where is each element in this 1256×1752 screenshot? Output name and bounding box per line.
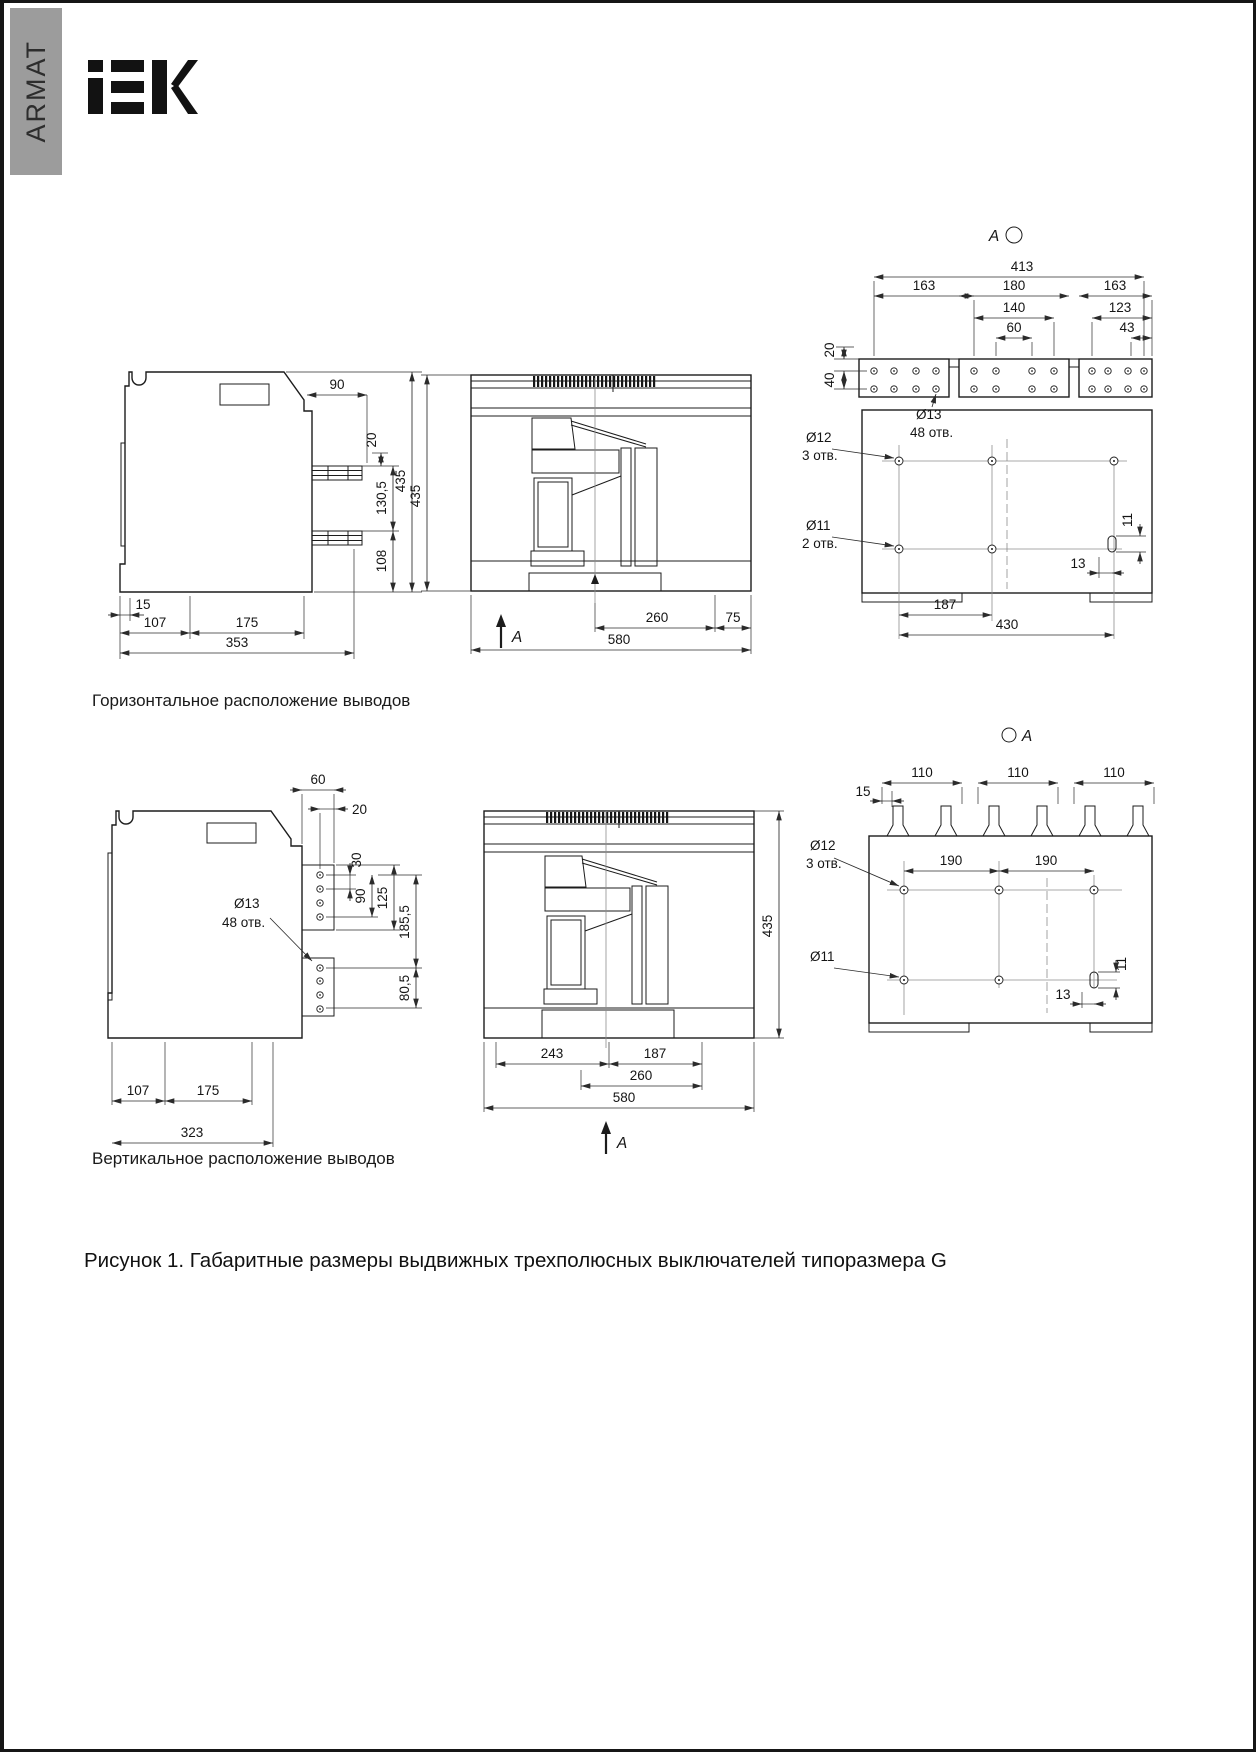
breaker-front-outline [471, 375, 751, 591]
dim-130-5: 130,5 [374, 481, 389, 515]
dim-108: 108 [374, 550, 389, 573]
terminal-tabs [887, 806, 1149, 836]
view-v-rear: A Ø12 3 отв. Ø11 [722, 643, 1184, 1055]
view-indicator: A [1002, 728, 1032, 745]
dim-243: 243 [541, 1046, 564, 1061]
view-h-side: 90 20 130,5 108 435 15 107 175 353 [82, 321, 427, 666]
breaker-front-outline [484, 811, 754, 1038]
view-h-rear: A [722, 199, 1184, 651]
hole-12-label: Ø12 [806, 430, 832, 445]
dimension-lines: 90 20 130,5 108 435 15 107 175 353 [108, 372, 422, 659]
dim-580: 580 [608, 632, 631, 647]
dim-435: 435 [409, 485, 423, 508]
armat-label: ARMAT [21, 40, 52, 143]
view-v-side: Ø13 48 отв. [64, 748, 432, 1160]
vertical-section-label: Вертикальное расположение выводов [92, 1149, 395, 1169]
dim-413: 413 [1011, 259, 1034, 274]
hole-13-label: Ø13 [916, 407, 942, 422]
dim-13: 13 [1070, 556, 1085, 571]
dim-353: 353 [226, 635, 249, 650]
terminal-holes [871, 368, 1147, 392]
dim-107: 107 [144, 615, 167, 630]
hole-callouts: Ø13 48 отв. [222, 896, 312, 961]
dim-43: 43 [1119, 320, 1134, 335]
dim-190-2: 190 [1035, 853, 1058, 868]
dim-11: 11 [1120, 513, 1135, 527]
hole-12-label: Ø12 [810, 838, 836, 853]
section-letter: A [616, 1135, 627, 1152]
dim-60: 60 [1006, 320, 1021, 335]
slot-hole [1108, 536, 1116, 552]
hole-12-count: 3 отв. [802, 448, 838, 463]
mechanism-details [531, 418, 657, 566]
dim-190-1: 190 [940, 853, 963, 868]
dim-323: 323 [181, 1125, 204, 1140]
dim-123: 123 [1109, 300, 1132, 315]
figure-caption: Рисунок 1. Габаритные размеры выдвижных … [84, 1249, 947, 1273]
mounting-plate [869, 836, 1152, 1032]
breaker-side-outline [120, 372, 312, 592]
dim-90: 90 [329, 377, 344, 392]
dim-140: 140 [1003, 300, 1026, 315]
hole-12-count: 3 отв. [806, 856, 842, 871]
dim-430: 430 [996, 617, 1019, 632]
dim-187: 187 [934, 597, 957, 612]
dim-13: 13 [1055, 987, 1070, 1002]
dimension-lines: 413 163 180 140 60 163 123 43 20 40 187 … [822, 259, 1152, 635]
hole-13-count: 48 отв. [910, 425, 953, 440]
section-arrow: A [601, 1121, 627, 1154]
dim-15: 15 [135, 597, 150, 612]
dimension-lines: 435 260 75 580 [409, 375, 751, 654]
breaker-side-outline [108, 811, 302, 1038]
dim-20: 20 [822, 342, 837, 357]
dimension-lines: 60 20 30 90 125 185,5 80,5 107 175 323 [112, 772, 422, 1147]
dim-60: 60 [310, 772, 325, 787]
dim-107: 107 [127, 1083, 150, 1098]
hole-11-count: 2 отв. [802, 536, 838, 551]
dim-163-right: 163 [1104, 278, 1127, 293]
dim-90: 90 [353, 888, 368, 903]
dim-260: 260 [646, 610, 669, 625]
dim-40: 40 [822, 372, 837, 387]
dim-110-1: 110 [911, 765, 933, 780]
dim-20: 20 [352, 802, 367, 817]
terminal-stubs [312, 466, 362, 545]
dim-80-5: 80,5 [397, 975, 412, 1001]
mounting-plate [862, 410, 1152, 639]
terminal-blocks [302, 865, 334, 1016]
page: ARMAT IEK [0, 0, 1256, 1752]
vent-grille [545, 812, 670, 823]
view-letter: A [988, 228, 999, 245]
hole-11-label: Ø11 [806, 518, 831, 533]
dim-187: 187 [644, 1046, 667, 1061]
view-letter: A [1021, 728, 1032, 745]
dim-175: 175 [197, 1083, 220, 1098]
dim-163-left: 163 [913, 278, 936, 293]
dim-110-2: 110 [1007, 765, 1029, 780]
dim-180: 180 [1003, 278, 1026, 293]
dim-580: 580 [613, 1090, 636, 1105]
horizontal-section-label: Горизонтальное расположение выводов [92, 691, 410, 711]
section-letter: A [511, 629, 522, 646]
armat-sidebar: ARMAT [10, 8, 62, 175]
dim-20: 20 [364, 432, 379, 447]
section-arrow: A [496, 614, 522, 648]
dim-15: 15 [855, 784, 870, 799]
hole-callouts: Ø13 48 отв. Ø12 3 отв. Ø11 2 отв. [802, 394, 953, 551]
vent-grille [532, 376, 657, 387]
dim-175: 175 [236, 615, 259, 630]
dim-260: 260 [630, 1068, 653, 1083]
view-indicator: A [988, 227, 1022, 245]
dim-110-3: 110 [1103, 765, 1125, 780]
dim-125: 125 [375, 887, 390, 910]
hole-13-label: Ø13 [234, 896, 260, 911]
hole-callouts: Ø12 3 отв. Ø11 [806, 838, 899, 977]
hole-13-count: 48 отв. [222, 915, 265, 930]
dim-435: 435 [393, 470, 408, 493]
hole-11-label: Ø11 [810, 949, 835, 964]
dim-185-5: 185,5 [397, 905, 412, 939]
terminal-strip [859, 359, 1152, 397]
iek-logo [88, 60, 198, 114]
dim-30: 30 [349, 852, 364, 867]
dim-11: 11 [1114, 957, 1129, 971]
view-h-front: 435 260 75 580 A [409, 318, 764, 663]
dimension-lines: 110 110 110 15 190 190 11 13 [855, 765, 1154, 1008]
